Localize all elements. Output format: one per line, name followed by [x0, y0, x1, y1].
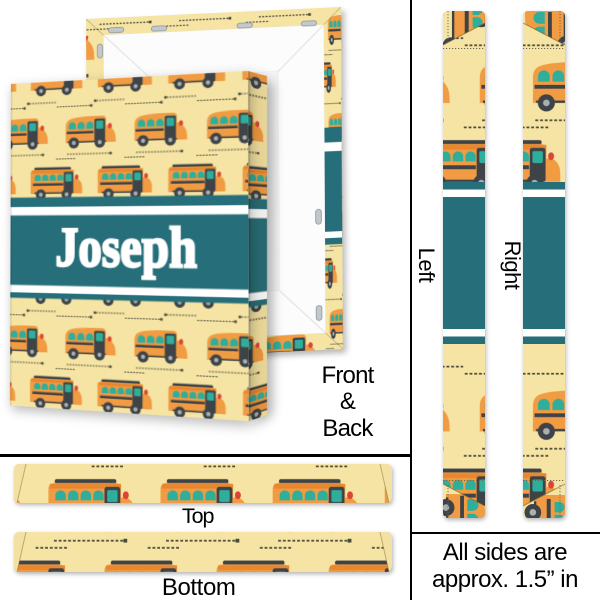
svg-text:Joseph: Joseph — [55, 217, 197, 281]
